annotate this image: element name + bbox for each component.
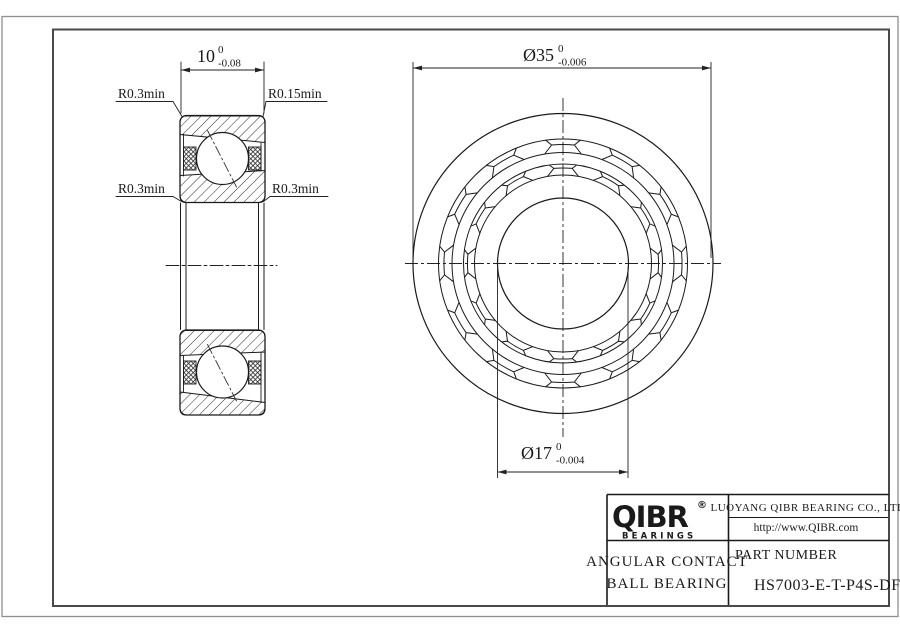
section-top-half — [180, 116, 265, 203]
bore-dim-tol-upper: 0 — [556, 441, 562, 453]
section-bottom-half — [180, 330, 265, 415]
bore-dim-tol-lower: -0.004 — [556, 455, 585, 467]
part-number-value: HS7003-E-T-P4S-DF — [754, 577, 900, 594]
cage-section-top-right — [249, 147, 262, 170]
company-name: LUOYANG QIBR BEARING CO., LTD — [711, 502, 900, 514]
cage-section-top-left — [184, 147, 197, 170]
width-dim-value: 10 — [197, 46, 215, 66]
label-r-bottom-right: R0.3min — [272, 181, 319, 196]
cage-section-bottom-left — [184, 361, 197, 384]
width-dim-tol-lower: -0.08 — [218, 58, 241, 70]
od-dim-value: Ø35 — [523, 45, 554, 65]
width-dim-tol-upper: 0 — [218, 44, 224, 56]
cage-section-bottom-right — [249, 361, 262, 384]
ball-bottom — [197, 346, 249, 398]
bore-dim-value: Ø17 — [521, 443, 552, 463]
product-name-line1: ANGULAR CONTACT — [586, 554, 748, 570]
logo-subtext: BEARINGS — [622, 532, 696, 542]
drawing-sheet: 10 0 -0.08 R0.3min R0.15min R0.3min R0.3… — [0, 0, 900, 636]
label-r-top-left: R0.3min — [118, 86, 165, 101]
bearing-drawing-canvas: 10 0 -0.08 R0.3min R0.15min R0.3min R0.3… — [0, 0, 900, 636]
od-dim-tol-upper: 0 — [558, 43, 564, 55]
logo-text: QIBR — [612, 500, 689, 534]
label-r-bottom-left: R0.3min — [118, 181, 165, 196]
label-r-top-right: R0.15min — [268, 86, 322, 101]
company-website: http://www.QIBR.com — [754, 522, 859, 534]
od-dim-tol-lower: -0.006 — [558, 57, 587, 69]
product-name-line2: BALL BEARING — [606, 576, 727, 592]
ball-top — [197, 133, 249, 185]
part-number-label: PART NUMBER — [735, 548, 837, 563]
registered-mark: ® — [697, 500, 707, 511]
